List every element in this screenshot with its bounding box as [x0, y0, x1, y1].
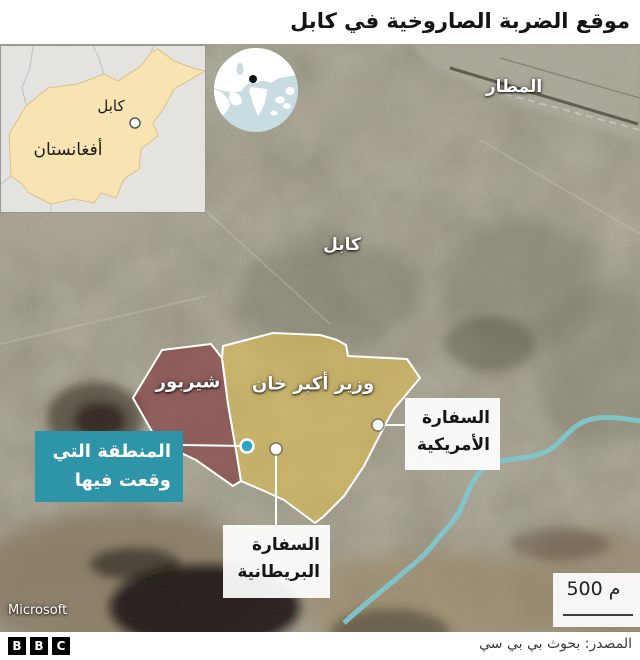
- bbc-logo: B B C: [8, 637, 70, 655]
- us-embassy-line2: الأمريكية: [413, 432, 490, 459]
- airport-label: المطار: [486, 77, 542, 97]
- bbc-logo-letter: B: [30, 637, 48, 655]
- wazir-akbar-khan-polygon: [222, 333, 420, 523]
- scale-line: [563, 614, 633, 616]
- source-credit: المصدر: بحوث بي بي سي: [479, 636, 632, 652]
- imagery-attribution: Microsoft: [8, 603, 67, 618]
- globe-locator-icon: [214, 48, 298, 132]
- us-embassy-dot: [372, 419, 384, 431]
- footer: B B C المصدر: بحوث بي بي سي: [0, 632, 640, 660]
- page-title: موقع الضربة الصاروخية في كابل: [10, 9, 630, 33]
- uk-embassy-dot: [270, 443, 282, 455]
- us-embassy-line1: السفارة: [413, 405, 490, 432]
- strike-area-line2: وقعت فيها: [43, 467, 171, 496]
- inset-kabul-label: كابل: [97, 97, 124, 115]
- us-embassy-callout: السفارة الأمريكية: [405, 398, 500, 470]
- afghanistan-shape: [1, 46, 205, 212]
- inset-map-afghanistan: كابل أفغانستان: [0, 45, 206, 213]
- globe-kabul-dot: [249, 75, 257, 83]
- uk-embassy-callout: السفارة البريطانية: [223, 525, 330, 598]
- kabul-city-label: كابل: [323, 235, 361, 255]
- wazir-akbar-khan-label: وزير أكبر خان: [252, 374, 374, 395]
- bbc-logo-letter: C: [52, 637, 70, 655]
- strike-location-dot: [241, 440, 254, 453]
- uk-embassy-line2: البريطانية: [231, 559, 320, 586]
- sherpur-label: شيربور: [156, 372, 221, 393]
- header: موقع الضربة الصاروخية في كابل: [0, 0, 640, 44]
- inset-afghanistan-label: أفغانستان: [34, 140, 103, 160]
- bbc-logo-letter: B: [8, 637, 26, 655]
- strike-leader-line: [183, 445, 246, 446]
- strike-area-callout: المنطقة التي وقعت فيها: [35, 431, 183, 502]
- scale-bar: 500 م: [553, 573, 640, 627]
- kabul-city-marker: [130, 118, 140, 128]
- uk-embassy-line1: السفارة: [231, 532, 320, 559]
- satellite-map: المطار كابل شيربور وزير أكبر خان المنطقة…: [0, 44, 640, 632]
- strike-area-line1: المنطقة التي: [43, 438, 171, 467]
- infographic-kabul-strike-map: موقع الضربة الصاروخية في كابل: [0, 0, 640, 660]
- scale-label: 500 م: [553, 578, 634, 600]
